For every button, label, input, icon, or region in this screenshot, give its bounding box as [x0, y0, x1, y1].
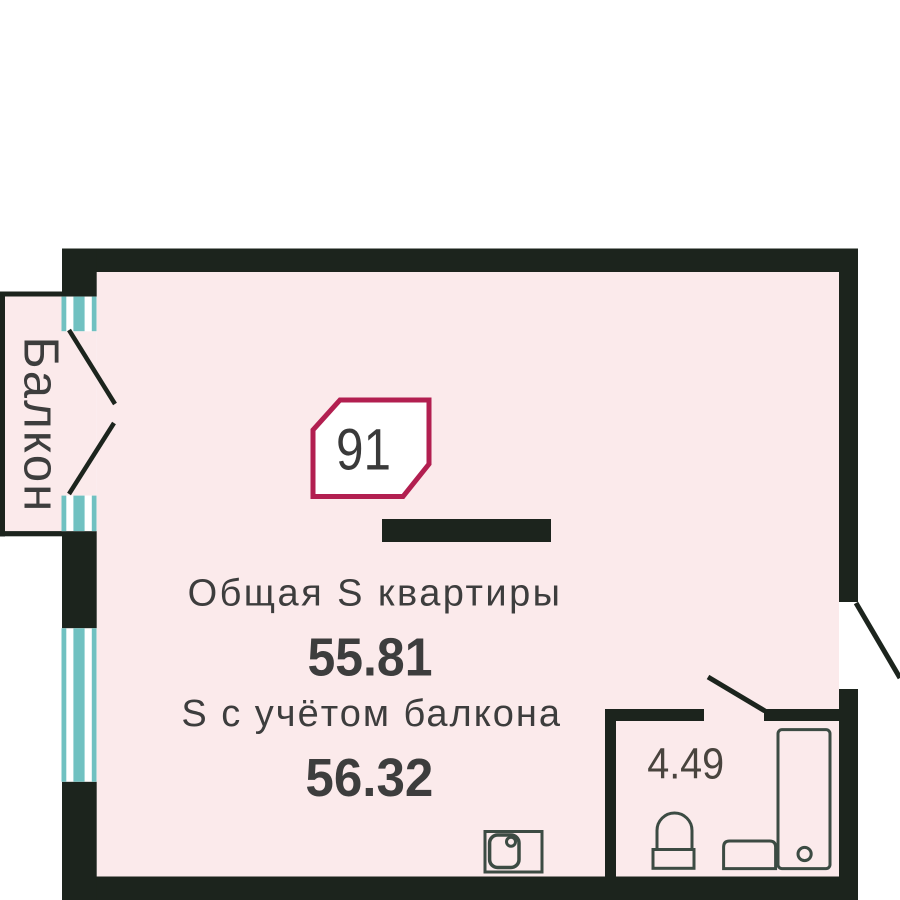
svg-text:55.81: 55.81	[308, 629, 433, 688]
svg-text:Общая S квартиры: Общая S квартиры	[188, 573, 563, 615]
svg-text:4.49: 4.49	[647, 741, 724, 789]
svg-text:91: 91	[336, 418, 391, 483]
svg-text:56.32: 56.32	[305, 749, 433, 808]
svg-text:S с учётом балкона: S с учётом балкона	[181, 693, 562, 735]
svg-text:Балкон: Балкон	[14, 337, 68, 514]
